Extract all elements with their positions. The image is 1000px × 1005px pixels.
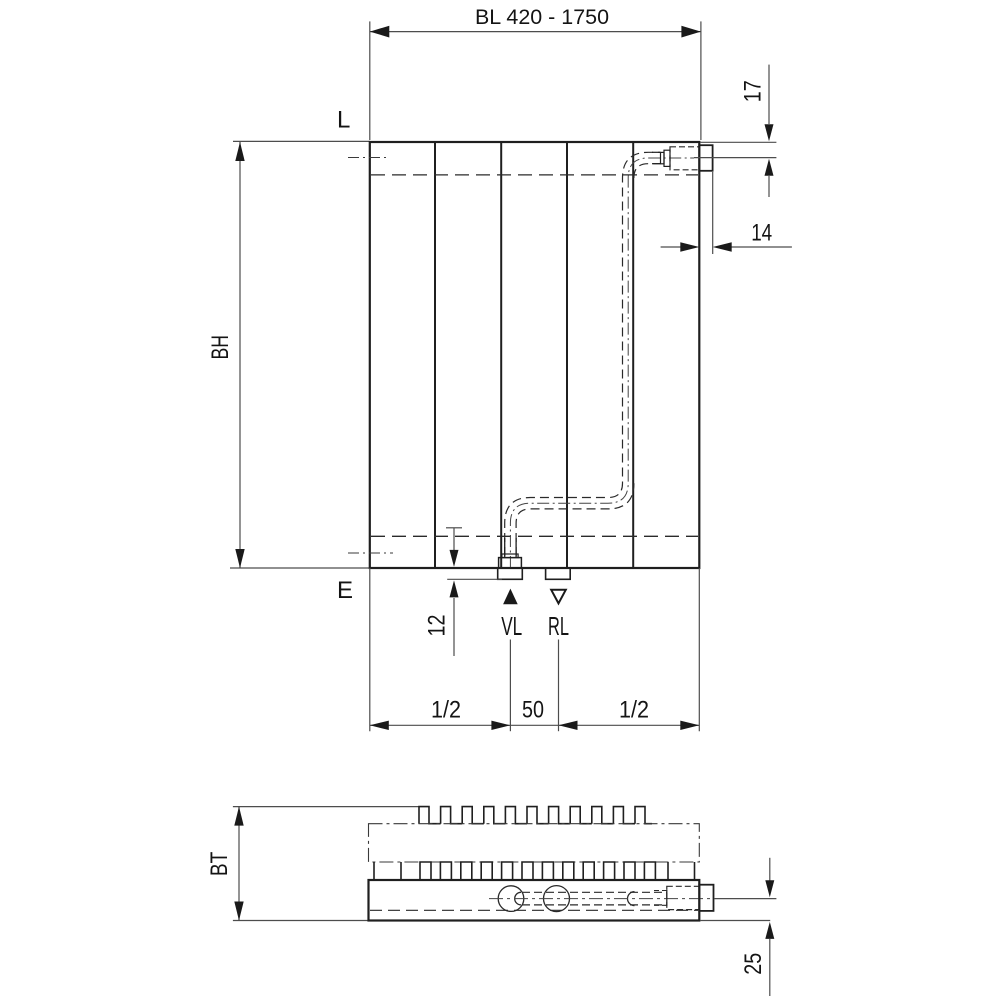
svg-text:BH: BH [207,335,234,360]
svg-text:L: L [337,107,350,134]
svg-text:VL: VL [501,611,522,641]
svg-text:17: 17 [740,80,767,102]
svg-text:E: E [337,577,353,604]
svg-text:12: 12 [424,615,451,637]
svg-text:BT: BT [206,851,233,876]
svg-text:BL 420 - 1750: BL 420 - 1750 [475,5,609,29]
svg-text:14: 14 [751,219,772,246]
svg-text:50: 50 [522,697,544,724]
svg-text:25: 25 [740,953,767,975]
svg-text:1/2: 1/2 [431,697,461,724]
svg-text:RL: RL [548,611,569,641]
svg-text:1/2: 1/2 [619,697,649,724]
